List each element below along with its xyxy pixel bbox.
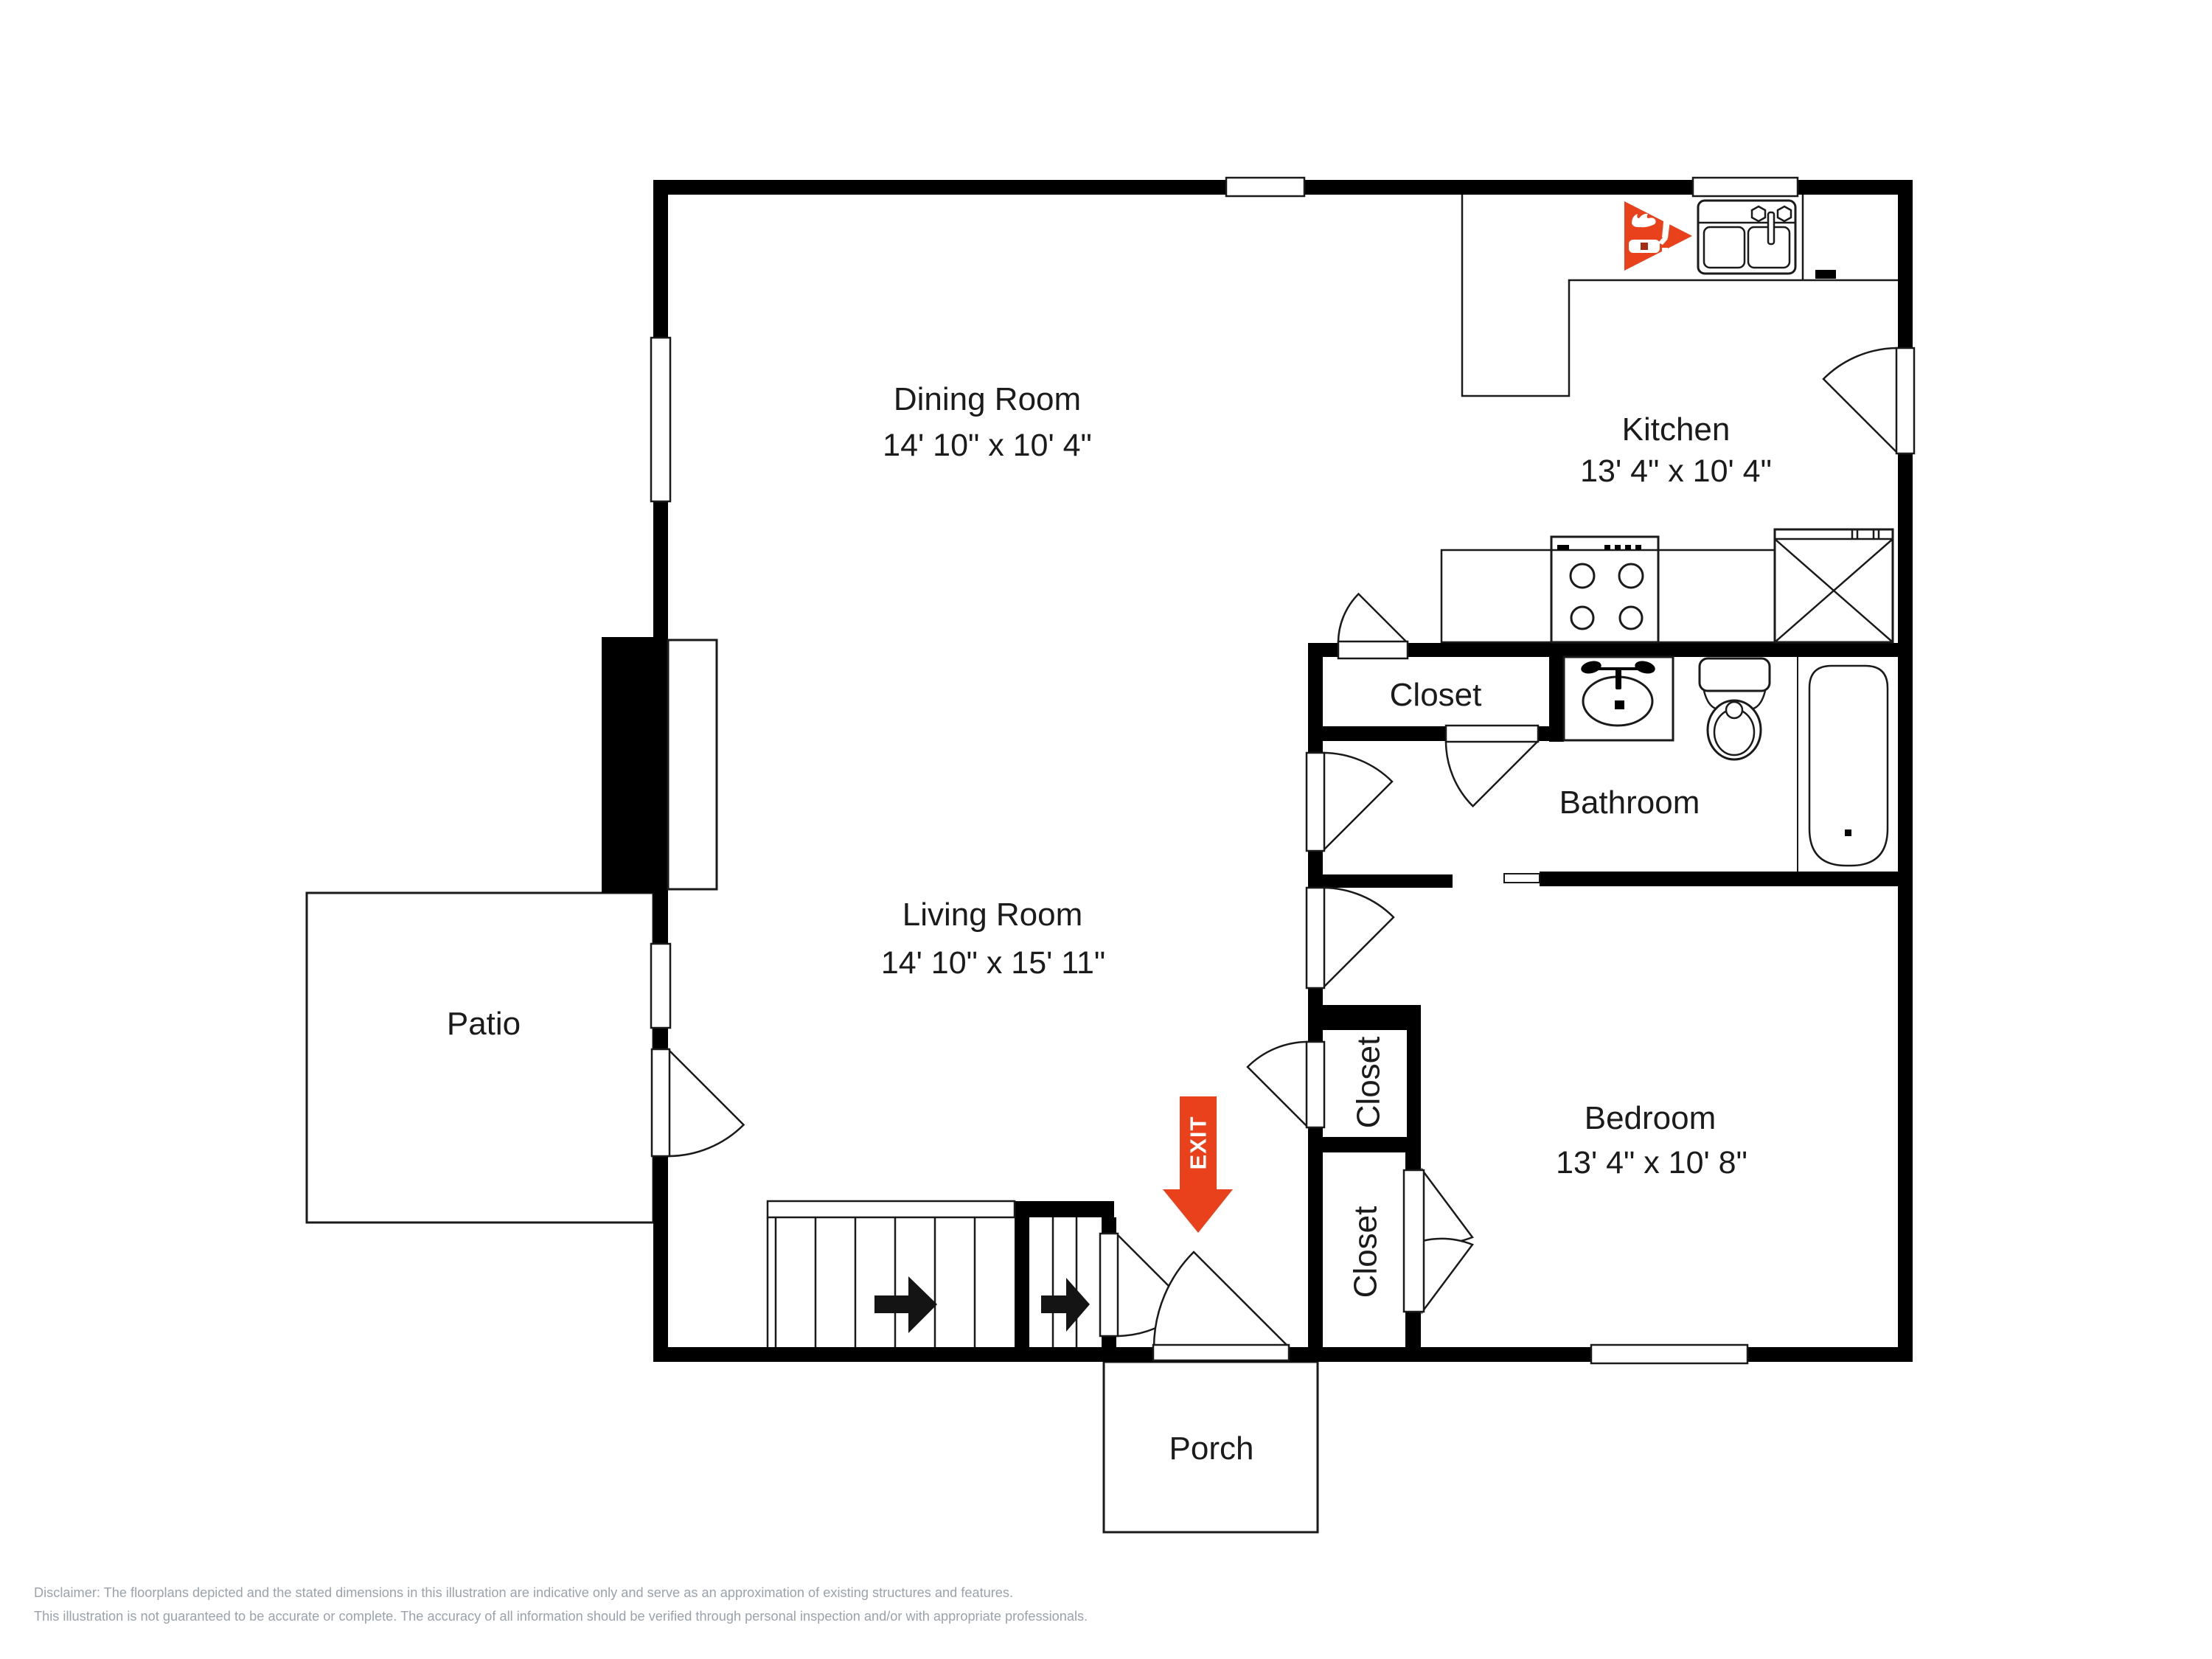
svg-text:Bathroom: Bathroom [1559,785,1700,821]
svg-text:EXIT: EXIT [1186,1116,1211,1170]
svg-text:Bedroom: Bedroom [1585,1100,1717,1136]
svg-text:13' 4" x 10' 4": 13' 4" x 10' 4" [1580,453,1772,489]
svg-text:Disclaimer: The floorplans dep: Disclaimer: The floorplans depicted and … [34,1585,1013,1600]
svg-text:Closet: Closet [1351,1037,1387,1129]
svg-text:This illustration is not guara: This illustration is not guaranteed to b… [34,1609,1088,1624]
svg-text:Living Room: Living Room [902,897,1083,933]
svg-text:14' 10" x 10' 4": 14' 10" x 10' 4" [883,428,1092,463]
svg-text:Kitchen: Kitchen [1622,411,1731,448]
svg-text:13' 4" x 10' 8": 13' 4" x 10' 8" [1556,1145,1747,1180]
svg-text:Porch: Porch [1169,1430,1254,1467]
svg-text:14' 10" x 15' 11": 14' 10" x 15' 11" [881,945,1105,981]
svg-text:Dining Room: Dining Room [894,381,1081,417]
svg-text:Patio: Patio [447,1006,521,1042]
svg-text:Closet: Closet [1348,1206,1384,1298]
svg-text:Closet: Closet [1390,677,1482,713]
